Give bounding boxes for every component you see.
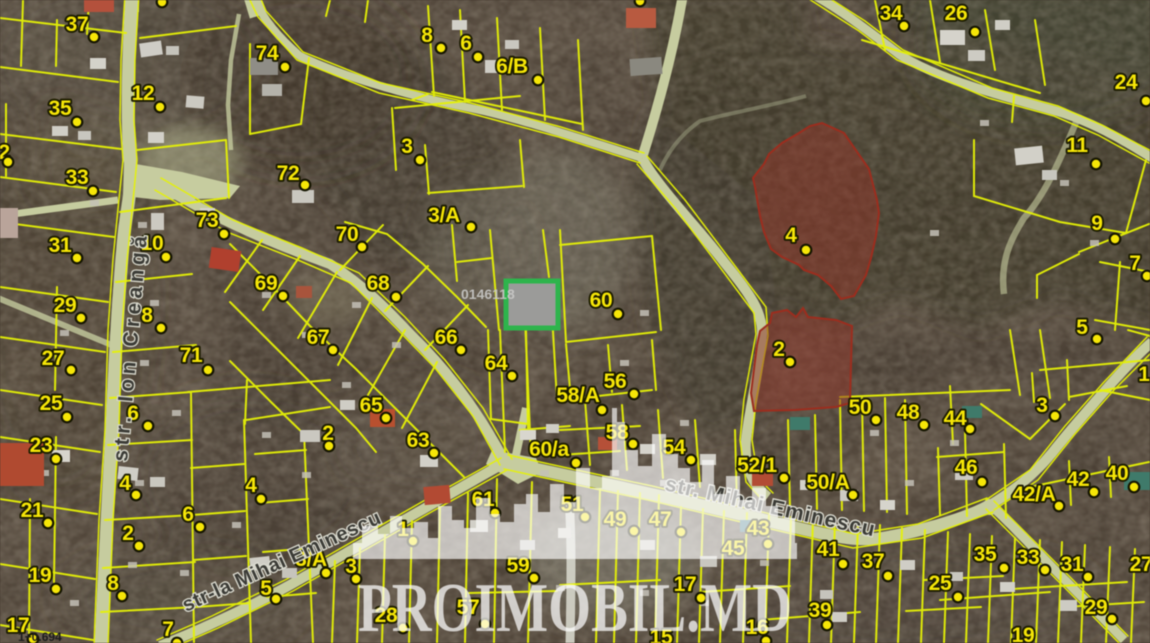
svg-text:5: 5: [1076, 316, 1088, 339]
svg-text:74: 74: [256, 42, 279, 65]
svg-text:69: 69: [255, 272, 278, 295]
svg-text:19: 19: [1012, 624, 1035, 643]
svg-text:27: 27: [42, 347, 65, 370]
svg-text:33: 33: [1017, 546, 1040, 569]
svg-text:2: 2: [122, 522, 133, 545]
svg-text:37: 37: [862, 550, 885, 573]
svg-text:60/a: 60/a: [529, 438, 569, 461]
svg-text:40: 40: [1106, 462, 1129, 485]
svg-text:42: 42: [1067, 468, 1090, 491]
svg-text:33: 33: [66, 166, 89, 189]
svg-text:50/A: 50/A: [806, 471, 849, 494]
svg-text:73: 73: [196, 209, 219, 232]
svg-text:65: 65: [360, 394, 383, 417]
svg-text:0146118: 0146118: [461, 286, 515, 302]
svg-text:37: 37: [66, 13, 89, 36]
svg-text:31: 31: [1061, 553, 1084, 576]
svg-text:56: 56: [604, 370, 627, 393]
svg-text:24: 24: [1115, 71, 1138, 94]
svg-text:26: 26: [945, 2, 968, 25]
svg-text:35: 35: [49, 97, 72, 120]
svg-text:12: 12: [132, 82, 155, 105]
svg-text:3: 3: [401, 135, 412, 158]
svg-text:41: 41: [817, 538, 840, 561]
svg-text:2: 2: [773, 338, 784, 361]
svg-text:1: 1: [1138, 363, 1150, 386]
svg-text:58/A: 58/A: [556, 384, 599, 407]
svg-text:11: 11: [1066, 134, 1088, 157]
svg-text:8: 8: [421, 24, 433, 47]
svg-text:21: 21: [21, 499, 44, 522]
svg-text:29: 29: [54, 294, 77, 317]
svg-text:64: 64: [485, 352, 508, 375]
svg-text:71: 71: [180, 344, 203, 367]
svg-text:25: 25: [929, 572, 952, 595]
svg-text:52/1: 52/1: [737, 454, 777, 477]
svg-text:9: 9: [1091, 212, 1102, 235]
svg-text:46: 46: [955, 456, 978, 479]
svg-text:29: 29: [1085, 596, 1108, 619]
svg-text:67: 67: [307, 326, 330, 349]
svg-text:44: 44: [944, 407, 967, 430]
svg-text:3: 3: [1036, 394, 1047, 417]
svg-text:7: 7: [162, 618, 173, 641]
svg-text:72: 72: [277, 162, 300, 185]
svg-text:25: 25: [40, 392, 63, 415]
svg-text:4: 4: [245, 474, 257, 497]
svg-text:63: 63: [407, 429, 430, 452]
svg-text:66: 66: [435, 326, 458, 349]
svg-text:48: 48: [897, 401, 920, 424]
svg-text:70: 70: [336, 223, 359, 246]
svg-text:35: 35: [974, 543, 997, 566]
svg-text:50: 50: [849, 396, 872, 419]
svg-text:4: 4: [785, 224, 797, 247]
svg-text:68: 68: [367, 272, 390, 295]
svg-text:3/A: 3/A: [428, 204, 460, 227]
svg-text:39: 39: [809, 599, 832, 622]
svg-text:7: 7: [1129, 252, 1140, 275]
svg-text:27: 27: [1130, 553, 1150, 576]
svg-text:PROIMOBIL.MD: PROIMOBIL.MD: [358, 570, 792, 643]
svg-text:19: 19: [29, 564, 52, 587]
svg-text:4: 4: [119, 472, 131, 495]
svg-text:60: 60: [590, 289, 613, 312]
svg-text:6/B: 6/B: [496, 55, 528, 78]
svg-text:6: 6: [182, 503, 193, 526]
svg-text:6: 6: [460, 32, 471, 55]
svg-text:23: 23: [30, 434, 53, 457]
svg-text:42/A: 42/A: [1012, 483, 1055, 506]
svg-text:31: 31: [49, 234, 72, 257]
svg-text:1+0.694: 1+0.694: [18, 630, 62, 643]
